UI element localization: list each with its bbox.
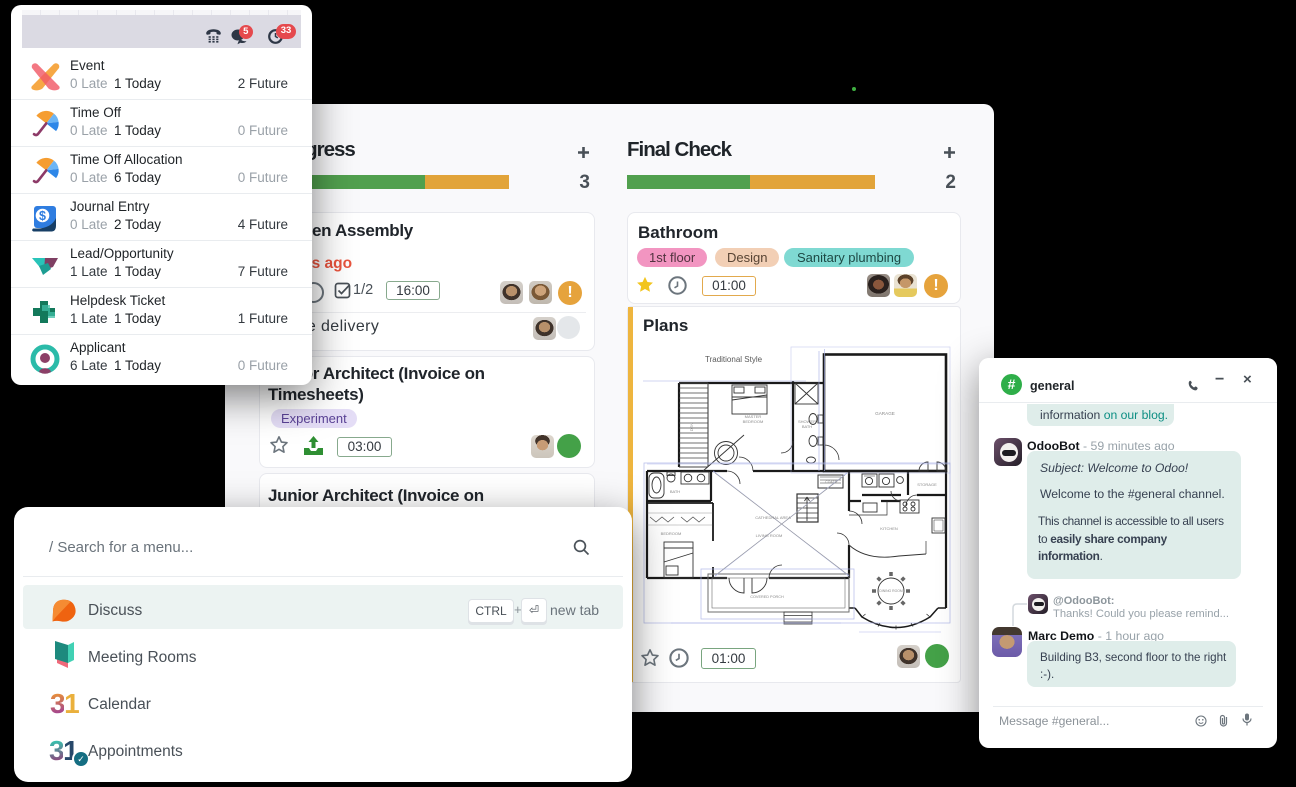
svg-text:LIVING ROOM: LIVING ROOM bbox=[756, 533, 783, 538]
svg-text:COATS: COATS bbox=[825, 480, 837, 484]
svg-text:DEN: DEN bbox=[689, 423, 694, 432]
svg-text:BEDROOM: BEDROOM bbox=[661, 531, 682, 536]
svg-text:DINING ROOM: DINING ROOM bbox=[879, 589, 903, 593]
svg-text:COVERED PORCH: COVERED PORCH bbox=[750, 595, 784, 599]
svg-text:KITCHEN: KITCHEN bbox=[880, 526, 898, 531]
svg-text:STORAGE: STORAGE bbox=[917, 482, 937, 487]
svg-text:Traditional Style: Traditional Style bbox=[705, 355, 763, 364]
svg-text:BATH: BATH bbox=[802, 424, 812, 429]
svg-text:BEDROOM: BEDROOM bbox=[743, 419, 764, 424]
svg-text:$: $ bbox=[39, 209, 46, 223]
svg-text:BATH: BATH bbox=[670, 489, 680, 494]
svg-text:GARAGE: GARAGE bbox=[875, 411, 895, 416]
svg-text:CATHEDRAL AREA: CATHEDRAL AREA bbox=[755, 515, 791, 520]
